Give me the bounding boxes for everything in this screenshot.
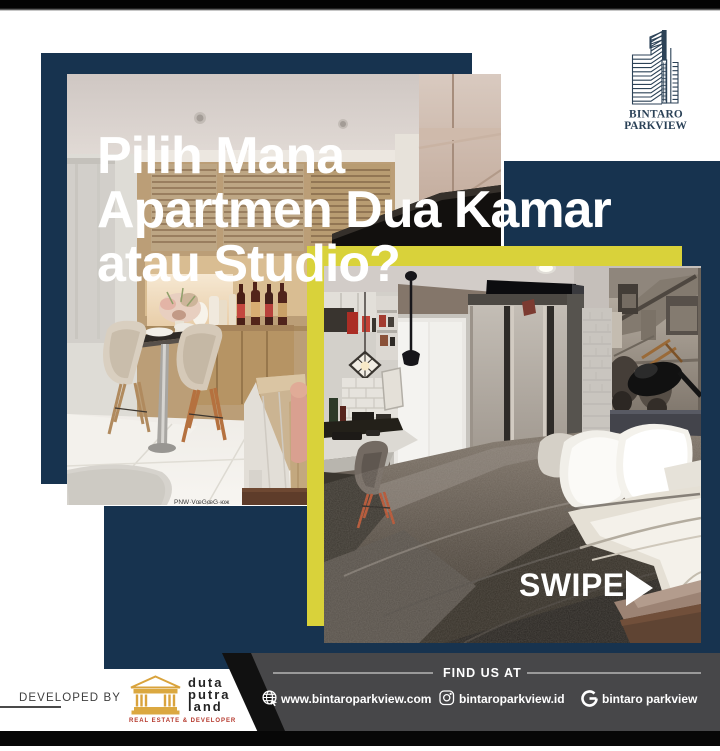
svg-text:land: land (188, 699, 223, 714)
svg-text:PARKVIEW: PARKVIEW (624, 120, 687, 132)
svg-text:BINTARO: BINTARO (629, 109, 683, 121)
svg-text:REAL ESTATE & DEVELOPER: REAL ESTATE & DEVELOPER (129, 718, 236, 724)
svg-text:PNW·VœGœG·юж: PNW·VœGœG·юж (174, 499, 230, 505)
